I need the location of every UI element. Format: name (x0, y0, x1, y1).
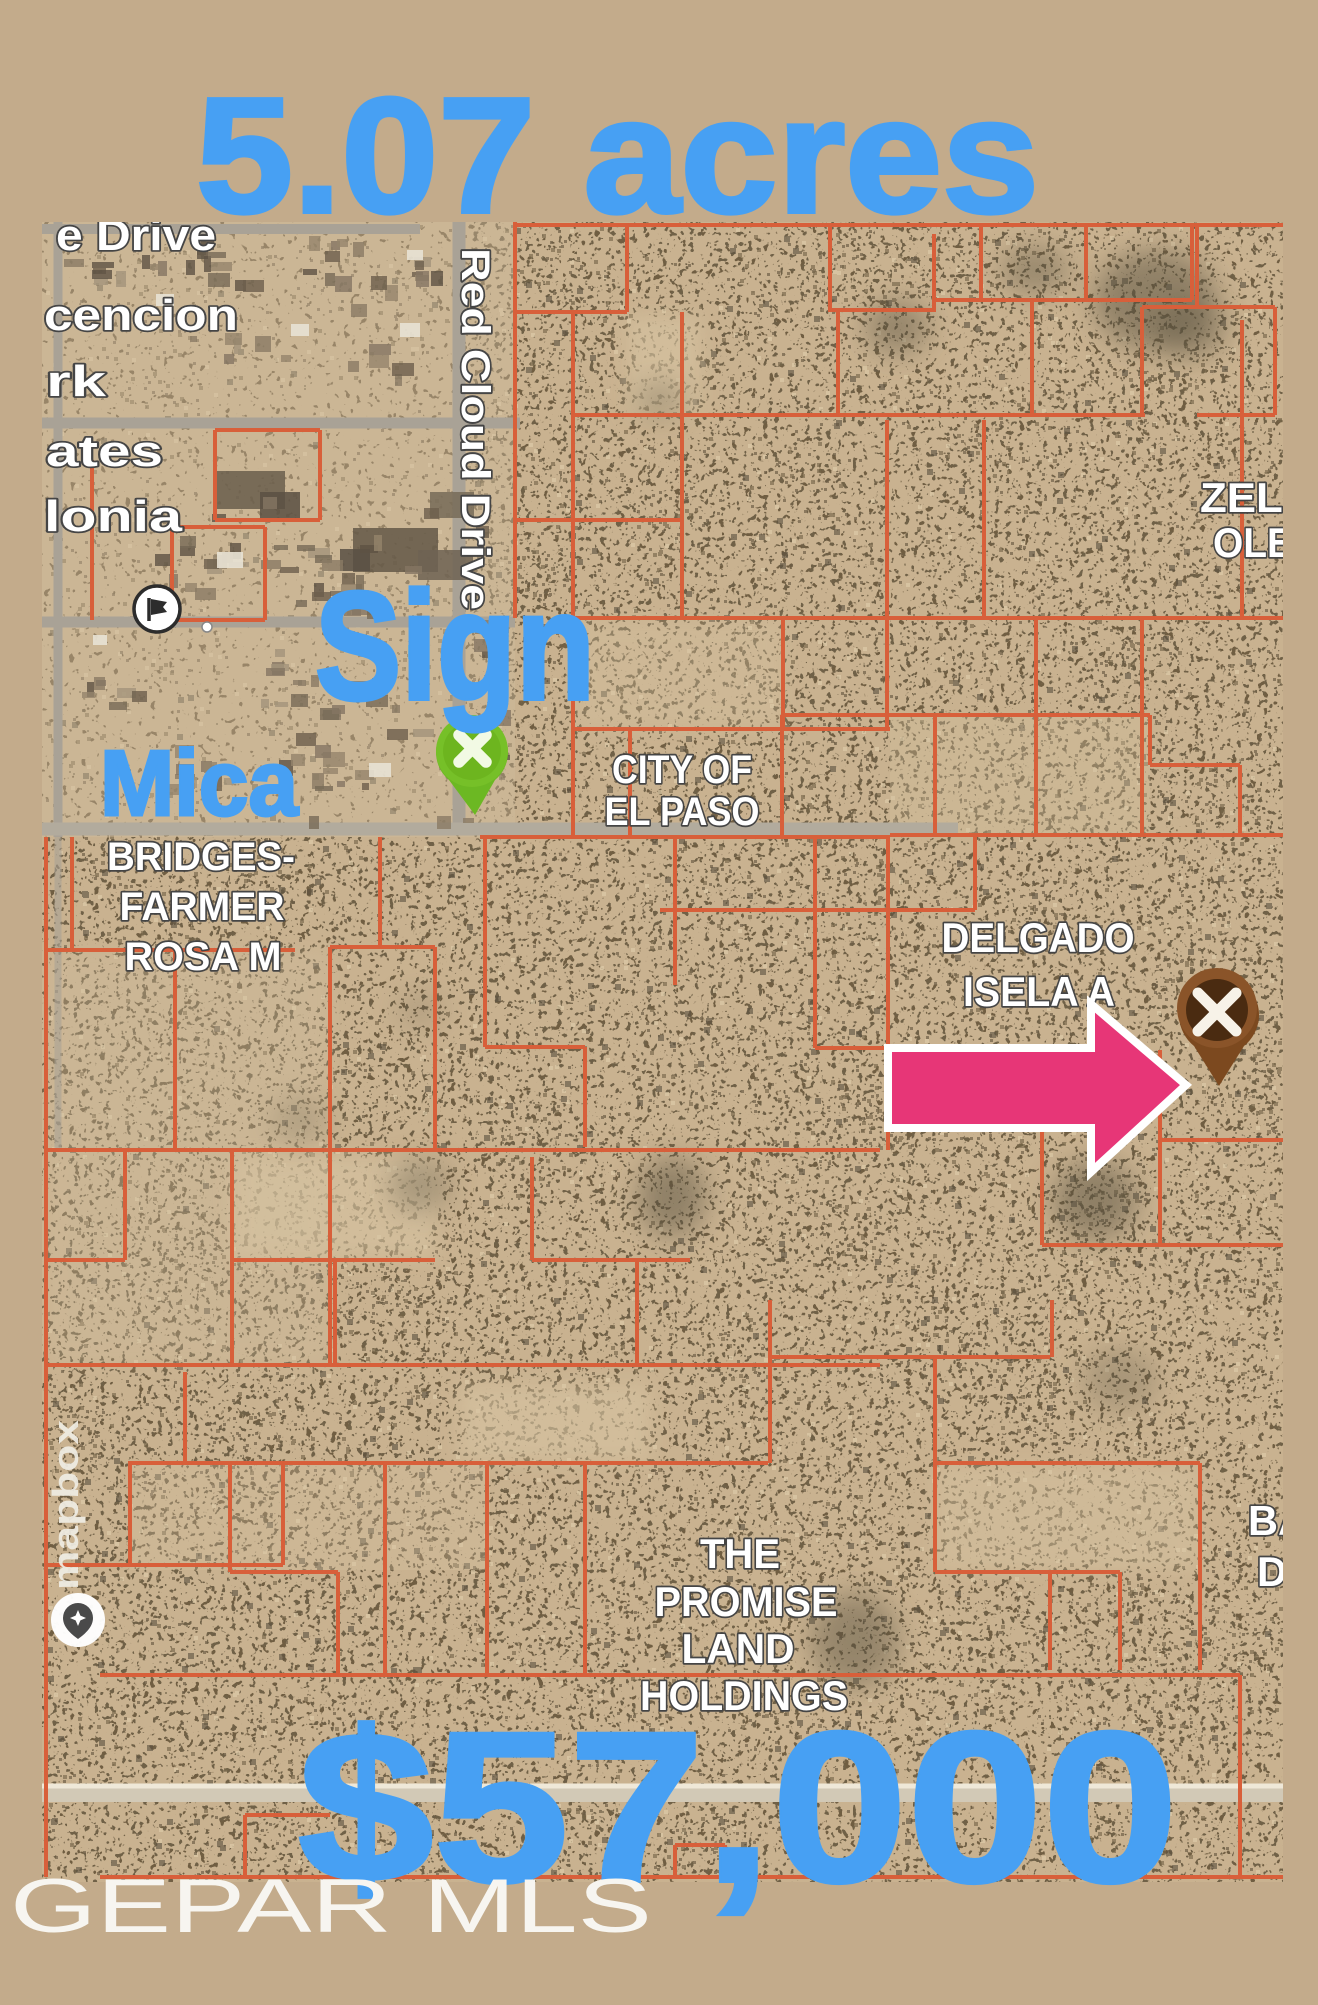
svg-text:EL PASO: EL PASO (605, 790, 760, 834)
svg-text:ZELI: ZELI (1200, 474, 1295, 521)
svg-text:CITY OF: CITY OF (612, 748, 752, 792)
svg-text:Sign: Sign (315, 560, 595, 732)
svg-text:mapbox: mapbox (45, 1420, 86, 1590)
svg-text:LAND: LAND (682, 1625, 795, 1672)
svg-text:BRIDGES-: BRIDGES- (107, 835, 295, 879)
svg-text:Red Cloud Drive: Red Cloud Drive (453, 248, 497, 610)
svg-text:DELGADO: DELGADO (942, 914, 1135, 961)
svg-text:D: D (1257, 1548, 1287, 1595)
svg-text:Mica: Mica (100, 731, 299, 835)
svg-text:5.07 acres: 5.07 acres (196, 64, 1039, 247)
svg-text:THE: THE (700, 1530, 780, 1577)
svg-text:ROSA M: ROSA M (125, 935, 282, 979)
svg-text:GEPAR MLS: GEPAR MLS (10, 1864, 652, 1949)
svg-text:cencion: cencion (44, 291, 238, 340)
svg-text:ates: ates (46, 427, 163, 476)
svg-text:lonia: lonia (44, 492, 183, 541)
svg-text:FARMER: FARMER (120, 885, 285, 929)
svg-text:OLE: OLE (1213, 519, 1293, 566)
svg-text:PROMISE: PROMISE (655, 1578, 838, 1625)
svg-text:rk: rk (46, 357, 107, 406)
